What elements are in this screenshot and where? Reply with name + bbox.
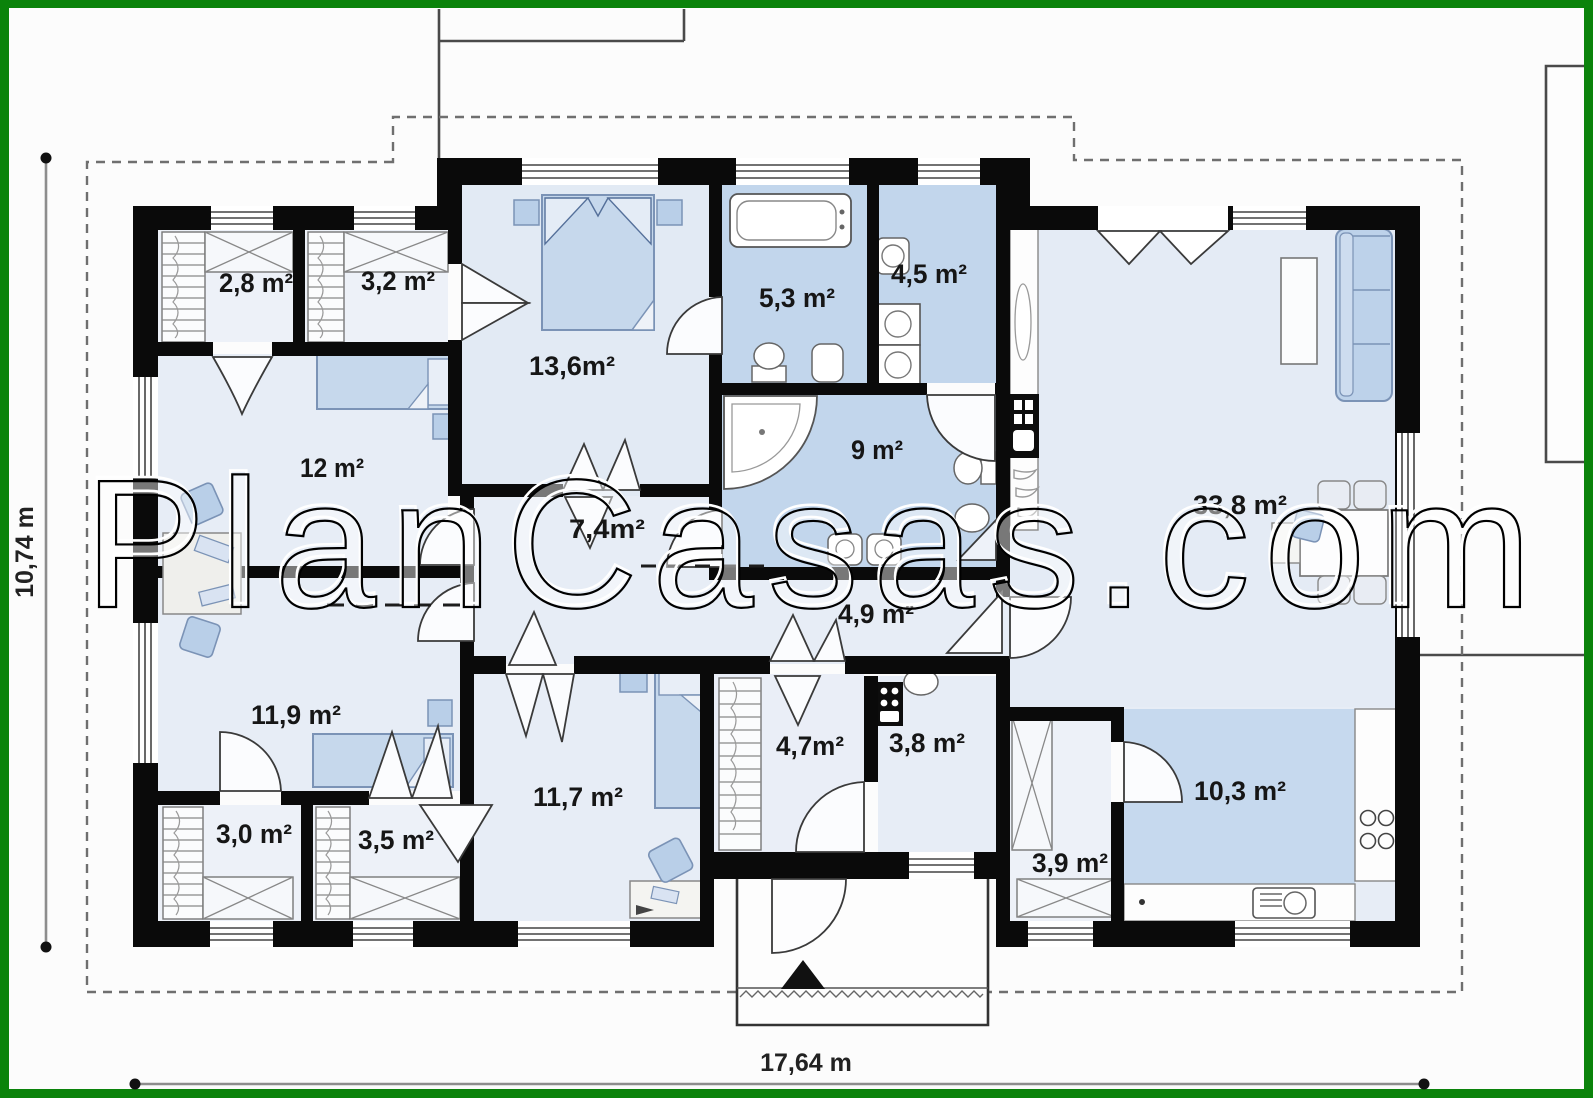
svg-text:13,6m²: 13,6m²	[529, 351, 615, 381]
svg-text:17,64 m: 17,64 m	[760, 1049, 852, 1077]
svg-text:10,3 m²: 10,3 m²	[1194, 776, 1286, 806]
svg-text:2,8 m²: 2,8 m²	[219, 268, 293, 298]
svg-text:3,0 m²: 3,0 m²	[216, 819, 292, 849]
svg-text:11,7 m²: 11,7 m²	[533, 782, 623, 812]
svg-text:3,9 m²: 3,9 m²	[1032, 848, 1108, 878]
svg-text:3,5 m²: 3,5 m²	[358, 825, 434, 855]
svg-text:4,5 m²: 4,5 m²	[891, 259, 967, 289]
svg-text:5,3 m²: 5,3 m²	[759, 283, 835, 313]
svg-text:11,9 m²: 11,9 m²	[251, 700, 341, 730]
svg-text:4,7m²: 4,7m²	[776, 731, 844, 761]
svg-text:3,8 m²: 3,8 m²	[889, 728, 965, 758]
svg-text:10,74 m: 10,74 m	[11, 506, 39, 598]
svg-text:3,2 m²: 3,2 m²	[361, 266, 435, 296]
svg-text:PlanCasas.com: PlanCasas.com	[84, 441, 1532, 646]
